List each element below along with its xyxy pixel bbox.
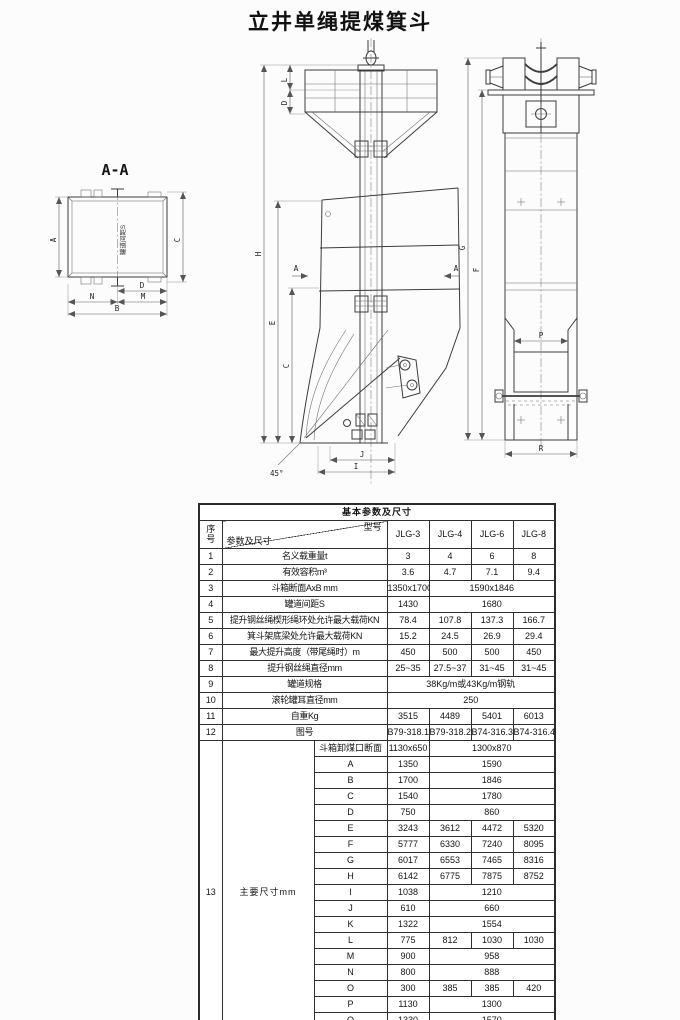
value-cell: 38Kg/m或43Kg/m钢轨 — [387, 677, 555, 693]
value-cell: 1540 — [387, 789, 429, 805]
value-cell: 8316 — [513, 853, 555, 869]
row-label: 有效容积m³ — [222, 565, 387, 581]
row-no: 2 — [199, 565, 222, 581]
guide-roller-right — [579, 66, 596, 88]
value-cell: 7240 — [471, 837, 513, 853]
value-cell: 26.9 — [471, 629, 513, 645]
section-cut-markers: A A — [292, 264, 460, 276]
value-cell: 3612 — [429, 821, 471, 837]
rail-spacing-text: 罐道间距S — [118, 224, 127, 255]
row-label: 滚轮罐耳直径mm — [222, 693, 387, 709]
value-cell: 5401 — [471, 709, 513, 725]
value-cell: 1570 — [429, 1013, 555, 1020]
value-cell: 750 — [387, 805, 429, 821]
value-cell: 610 — [387, 901, 429, 917]
table-row: 9罐道规格38Kg/m或43Kg/m钢轨 — [199, 677, 555, 693]
value-cell: 24.5 — [429, 629, 471, 645]
value-cell: 1350 — [387, 757, 429, 773]
row-label: 最大提升高度（带尾绳时）m — [222, 645, 387, 661]
dim-label-h: H — [254, 251, 263, 256]
dim-label-d2: D — [280, 100, 289, 105]
value-cell: 1300x870 — [429, 741, 555, 757]
dim-label-r: R — [539, 444, 544, 453]
row-no: 7 — [199, 645, 222, 661]
dim-name-cell: H — [314, 869, 387, 885]
table-row: 8提升钢丝绳直径mm25~3527.5~3731~4531~45 — [199, 661, 555, 677]
table-title: 基本参数及尺寸 — [199, 504, 555, 521]
row-label: 名义载重量t — [222, 549, 387, 565]
value-cell: 4.7 — [429, 565, 471, 581]
value-cell: 107.8 — [429, 613, 471, 629]
page: 立井单绳提煤箕斗 A-A 罐道间距S — [0, 0, 680, 1020]
value-cell: 300 — [387, 981, 429, 997]
table-row: 2有效容积m³3.64.77.19.4 — [199, 565, 555, 581]
dim-name-cell: D — [314, 805, 387, 821]
value-cell: 1322 — [387, 917, 429, 933]
parameters-table: 基本参数及尺寸序号型号参数及尺寸JLG-3JLG-4JLG-6JLG-81名义载… — [198, 503, 556, 1020]
value-cell: 1554 — [429, 917, 555, 933]
value-cell: 4 — [429, 549, 471, 565]
value-cell: 3243 — [387, 821, 429, 837]
front-view-dimensions: H E C L D J I — [254, 65, 395, 474]
value-cell: 31~45 — [471, 661, 513, 677]
value-cell: 8752 — [513, 869, 555, 885]
row-no: 1 — [199, 549, 222, 565]
col-header-model: JLG-8 — [513, 521, 555, 549]
col-header-param-model: 型号参数及尺寸 — [222, 521, 387, 549]
table-title-row: 基本参数及尺寸 — [199, 504, 555, 521]
dim-label-j: J — [360, 450, 365, 459]
table-row: 3斗箱断面AxB mm1350x17001590x1846 — [199, 581, 555, 597]
value-cell: 1846 — [429, 773, 555, 789]
value-cell: 385 — [471, 981, 513, 997]
value-cell: 1330 — [387, 1013, 429, 1020]
guide-roller-left — [486, 66, 503, 88]
dim-label-c2: C — [282, 364, 291, 369]
value-cell: 775 — [387, 933, 429, 949]
value-cell: 4472 — [471, 821, 513, 837]
row-label: 主要尺寸mm — [222, 741, 314, 1020]
row-no: 8 — [199, 661, 222, 677]
value-cell: 137.3 — [471, 613, 513, 629]
table-row: 6箕斗架底梁处允许最大载荷KN15.224.526.929.4 — [199, 629, 555, 645]
dim-label-l: L — [280, 77, 289, 82]
row-label: 提升钢丝绳直径mm — [222, 661, 387, 677]
dim-name-cell: N — [314, 965, 387, 981]
value-cell: 420 — [513, 981, 555, 997]
dim-name-cell: Q — [314, 1013, 387, 1020]
row-no: 4 — [199, 597, 222, 613]
dim-label-m: M — [141, 292, 146, 301]
col-header-no: 序号 — [199, 521, 222, 549]
value-cell: 4489 — [429, 709, 471, 725]
value-cell: 450 — [513, 645, 555, 661]
value-cell: 800 — [387, 965, 429, 981]
value-cell: 958 — [429, 949, 555, 965]
value-cell: 8 — [513, 549, 555, 565]
value-cell: 1590x1846 — [429, 581, 555, 597]
value-cell: 6330 — [429, 837, 471, 853]
side-view-drawing: G F P R — [452, 38, 680, 486]
row-no: 9 — [199, 677, 222, 693]
suspension-gear — [486, 42, 596, 133]
dim-label-p: P — [539, 331, 544, 340]
row-label: 自重Kg — [222, 709, 387, 725]
value-cell: 8095 — [513, 837, 555, 853]
row-label: 提升钢丝绳楔形绳环处允许最大载荷KN — [222, 613, 387, 629]
value-cell: 1700 — [387, 773, 429, 789]
model-header: 型号 — [363, 523, 381, 532]
value-cell: 5777 — [387, 837, 429, 853]
value-cell: 1130x650 — [387, 741, 429, 757]
value-cell: 812 — [429, 933, 471, 949]
dim-name-cell: 斗箱卸煤口断面 — [314, 741, 387, 757]
value-cell: 1030 — [471, 933, 513, 949]
value-cell: 888 — [429, 965, 555, 981]
value-cell: 7465 — [471, 853, 513, 869]
row-no: 5 — [199, 613, 222, 629]
value-cell: 3 — [387, 549, 429, 565]
value-cell: 6553 — [429, 853, 471, 869]
dim-name-cell: P — [314, 997, 387, 1013]
section-dimensions: A C D N M B — [49, 192, 187, 316]
col-header-model: JLG-6 — [471, 521, 513, 549]
spec-table: 基本参数及尺寸序号型号参数及尺寸JLG-3JLG-4JLG-6JLG-81名义载… — [198, 503, 556, 1020]
table-row: 1名义载重量t3468 — [199, 549, 555, 565]
value-cell: 5320 — [513, 821, 555, 837]
value-cell: 1680 — [429, 597, 555, 613]
value-cell: 6142 — [387, 869, 429, 885]
table-row: 7最大提升高度（带尾绳时）m450500500450 — [199, 645, 555, 661]
value-cell: 860 — [429, 805, 555, 821]
table-row: 10滚轮罐耳直径mm250 — [199, 693, 555, 709]
dim-name-cell: M — [314, 949, 387, 965]
value-cell: B74-316.3 — [471, 725, 513, 741]
dim-label-g: G — [458, 245, 467, 250]
angle-label: 45° — [270, 469, 284, 478]
value-cell: 6017 — [387, 853, 429, 869]
table-row: 13主要尺寸mm斗箱卸煤口断面1130x6501300x870 — [199, 741, 555, 757]
value-cell: 385 — [429, 981, 471, 997]
value-cell: 450 — [387, 645, 429, 661]
section-label: A-A — [101, 161, 128, 179]
dim-name-cell: G — [314, 853, 387, 869]
value-cell: 1350x1700 — [387, 581, 429, 597]
col-header-model: JLG-3 — [387, 521, 429, 549]
row-label: 图号 — [222, 725, 387, 741]
row-label: 箕斗架底梁处允许最大载荷KN — [222, 629, 387, 645]
dim-name-cell: F — [314, 837, 387, 853]
table-header-row: 序号型号参数及尺寸JLG-3JLG-4JLG-6JLG-8 — [199, 521, 555, 549]
dim-name-cell: A — [314, 757, 387, 773]
dim-label-i: I — [354, 462, 359, 471]
row-no: 12 — [199, 725, 222, 741]
dim-name-cell: C — [314, 789, 387, 805]
table-row: 12图号B79-318.1B79-318.2B74-316.3B74-316.4 — [199, 725, 555, 741]
row-no: 13 — [199, 741, 222, 1020]
dim-name-cell: L — [314, 933, 387, 949]
value-cell: 78.4 — [387, 613, 429, 629]
value-cell: 31~45 — [513, 661, 555, 677]
value-cell: 9.4 — [513, 565, 555, 581]
dim-name-cell: J — [314, 901, 387, 917]
value-cell: 7.1 — [471, 565, 513, 581]
row-label: 罐道规格 — [222, 677, 387, 693]
value-cell: 3515 — [387, 709, 429, 725]
value-cell: 900 — [387, 949, 429, 965]
section-mark-a-left: A — [294, 264, 299, 273]
value-cell: 15.2 — [387, 629, 429, 645]
page-title: 立井单绳提煤箕斗 — [0, 6, 680, 36]
value-cell: 1210 — [429, 885, 555, 901]
dim-label-f: F — [472, 267, 481, 272]
value-cell: 1430 — [387, 597, 429, 613]
dim-label-e: E — [268, 320, 277, 325]
value-cell: 500 — [429, 645, 471, 661]
value-cell: 660 — [429, 901, 555, 917]
section-view-drawing: A-A 罐道间距S A C — [45, 148, 210, 338]
value-cell: B74-316.4 — [513, 725, 555, 741]
side-view-dimensions: G F P R — [458, 58, 577, 458]
value-cell: B79-318.1 — [387, 725, 429, 741]
value-cell: 6013 — [513, 709, 555, 725]
value-cell: 29.4 — [513, 629, 555, 645]
row-label: 斗箱断面AxB mm — [222, 581, 387, 597]
row-no: 6 — [199, 629, 222, 645]
row-no: 10 — [199, 693, 222, 709]
value-cell: 7875 — [471, 869, 513, 885]
value-cell: 3.6 — [387, 565, 429, 581]
dim-name-cell: I — [314, 885, 387, 901]
top-clamps — [81, 189, 161, 197]
value-cell: 25~35 — [387, 661, 429, 677]
table-row: 11自重Kg3515448954016013 — [199, 709, 555, 725]
value-cell: 1030 — [513, 933, 555, 949]
row-no: 3 — [199, 581, 222, 597]
row-no: 11 — [199, 709, 222, 725]
value-cell: 250 — [387, 693, 555, 709]
value-cell: 1300 — [429, 997, 555, 1013]
value-cell: 6 — [471, 549, 513, 565]
skip-box-section: 罐道间距S — [68, 189, 167, 286]
dim-label-a: A — [49, 237, 58, 242]
value-cell: 1038 — [387, 885, 429, 901]
dim-name-cell: B — [314, 773, 387, 789]
table-row: 5提升钢丝绳楔形绳环处允许最大载荷KN78.4107.8137.3166.7 — [199, 613, 555, 629]
dim-label-n: N — [90, 292, 95, 301]
param-header: 参数及尺寸 — [227, 537, 272, 546]
dim-name-cell: K — [314, 917, 387, 933]
value-cell: 1780 — [429, 789, 555, 805]
front-view-drawing: 45° A A H E C L D J I — [248, 38, 470, 490]
value-cell: 500 — [471, 645, 513, 661]
dim-label-b: B — [115, 304, 120, 313]
bottom-clamps — [81, 277, 161, 286]
tipping-linkage — [386, 356, 420, 398]
col-header-model: JLG-4 — [429, 521, 471, 549]
value-cell: 166.7 — [513, 613, 555, 629]
value-cell: 27.5~37 — [429, 661, 471, 677]
dim-label-d: D — [140, 281, 145, 290]
value-cell: B79-318.2 — [429, 725, 471, 741]
parameters-table-body: 基本参数及尺寸序号型号参数及尺寸JLG-3JLG-4JLG-6JLG-81名义载… — [199, 504, 555, 1020]
dim-name-cell: E — [314, 821, 387, 837]
value-cell: 1590 — [429, 757, 555, 773]
row-label: 罐道间距S — [222, 597, 387, 613]
value-cell: 1130 — [387, 997, 429, 1013]
table-row: 4罐道间距S14301680 — [199, 597, 555, 613]
value-cell: 6775 — [429, 869, 471, 885]
dim-label-c: C — [173, 238, 182, 243]
dim-name-cell: O — [314, 981, 387, 997]
